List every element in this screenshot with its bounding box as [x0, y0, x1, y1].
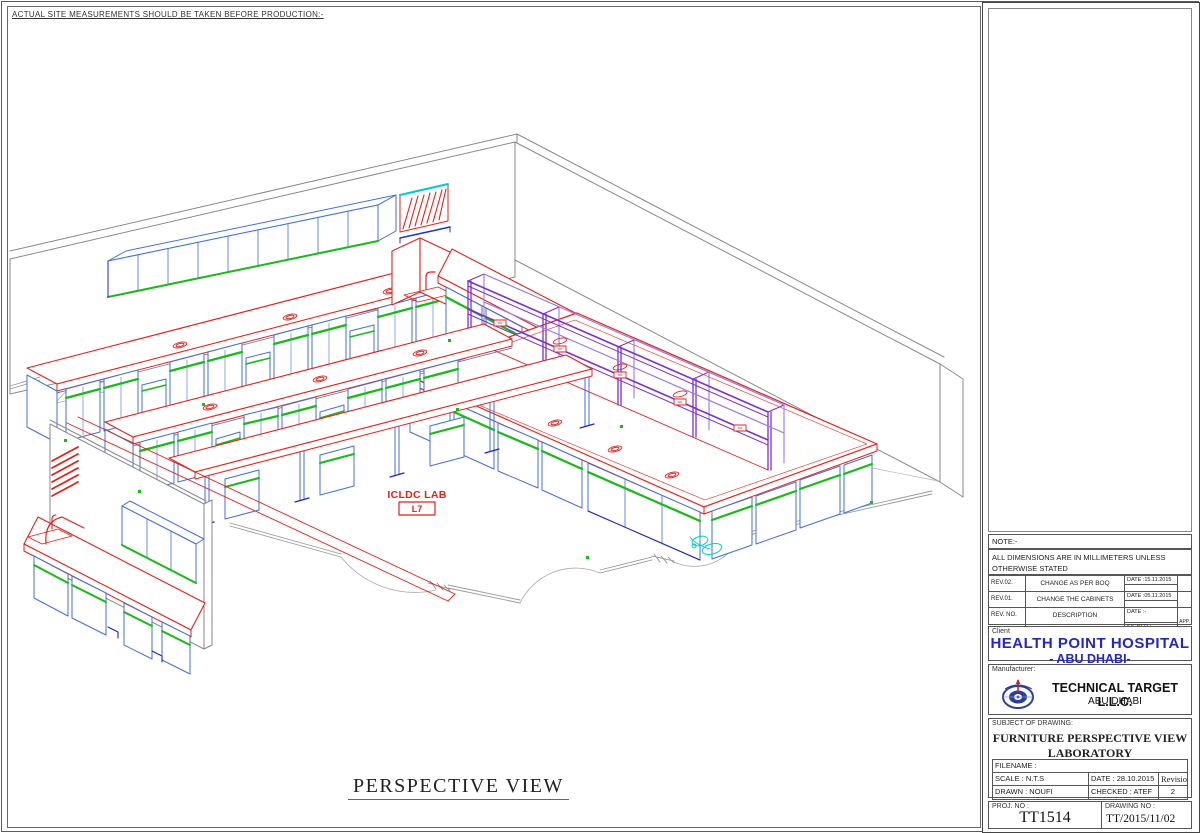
drawing-fields-table: FILENAME : SCALE : N.T.S DATE : 28.10.20… — [992, 759, 1188, 800]
room-label: ICLDC LAB L7 — [387, 489, 446, 515]
revision-row: REV.01. CHANGE THE CABINETS DATE :05.11.… — [989, 592, 1191, 608]
drawing-no-cell: DRAWING NO : TT/2015/11/02 — [1102, 802, 1191, 828]
checked-field: CHECKED : ATEF — [1089, 786, 1159, 799]
client-label: Client — [992, 628, 1010, 635]
drawing-area: ACTUAL SITE MEASUREMENTS SHOULD BE TAKEN… — [7, 6, 981, 828]
revision-value: 2 — [1159, 786, 1187, 799]
manufacturer-label: Manufacturer: — [992, 666, 1035, 673]
rev-app-cell — [1178, 592, 1191, 607]
title-block: NOTE:- ALL DIMENSIONS ARE IN MILLIMETERS… — [982, 2, 1200, 833]
rev-date-cell: DATE :15.11.2015 — [1125, 576, 1178, 591]
rev-number: REV.02. — [989, 576, 1026, 591]
client-name: HEALTH POINT HOSPITAL — [989, 635, 1191, 652]
proj-no-value: TT1514 — [989, 809, 1101, 827]
filename-field: FILENAME : — [993, 760, 1187, 772]
perspective-drawing: STORAGE — [8, 7, 979, 825]
room-number-text: L7 — [412, 504, 423, 514]
drawn-field: DRAWN : NOUFI — [993, 786, 1089, 799]
rev-number: REV.01. — [989, 592, 1026, 607]
date-field: DATE : 28.10.2015 — [1089, 773, 1159, 785]
revision-table: REV.02. CHANGE AS PER BOQ DATE :15.11.20… — [988, 575, 1192, 625]
drawing-no-label: DRAWING NO : — [1105, 803, 1155, 810]
rev-description: CHANGE THE CABINETS — [1026, 592, 1125, 607]
site-measurement-note: ACTUAL SITE MEASUREMENTS SHOULD BE TAKEN… — [12, 10, 324, 19]
technical-target-logo-icon — [997, 678, 1041, 712]
revision-row: REV.02. CHANGE AS PER BOQ DATE :15.11.20… — [989, 576, 1191, 592]
subject-label: SUBJECT OF DRAWING: — [992, 720, 1073, 727]
rev-app-cell — [1178, 576, 1191, 591]
door-threshold-hatch — [428, 554, 674, 591]
revision-label: Revision — [1159, 773, 1187, 785]
proj-no-label: PROJ. NO : — [992, 803, 1029, 810]
proj-no-cell: PROJ. NO : TT1514 — [989, 802, 1102, 828]
rev-date-cell: DATE :05.11.2015 — [1125, 592, 1178, 607]
view-caption: PERSPECTIVE VIEW — [348, 775, 569, 800]
scale-field: SCALE : N.T.S — [993, 773, 1089, 785]
subject-section: SUBJECT OF DRAWING: FURNITURE PERSPECTIV… — [988, 718, 1192, 798]
manufacturer-city: ABU DHABI — [1041, 696, 1189, 707]
client-section: Client HEALTH POINT HOSPITAL - ABU DHABI… — [988, 626, 1192, 661]
rev-description: CHANGE AS PER BOQ — [1026, 576, 1125, 591]
subject-line1: FURNITURE PERSPECTIVE VIEW — [989, 731, 1191, 746]
title-block-empty-panel — [988, 8, 1192, 532]
manufacturer-section: Manufacturer: TECHNICAL TARGET L.L.C. AB… — [988, 664, 1192, 715]
project-number-section: PROJ. NO : TT1514 DRAWING NO : TT/2015/1… — [988, 801, 1192, 829]
drawing-no-value: TT/2015/11/02 — [1106, 813, 1191, 825]
drawing-sheet: ACTUAL SITE MEASUREMENTS SHOULD BE TAKEN… — [0, 0, 1200, 833]
note-text: ALL DIMENSIONS ARE IN MILLIMETERS UNLESS… — [988, 549, 1192, 575]
note-heading: NOTE:- — [988, 534, 1192, 549]
room-label-text: ICLDC LAB — [387, 489, 446, 501]
